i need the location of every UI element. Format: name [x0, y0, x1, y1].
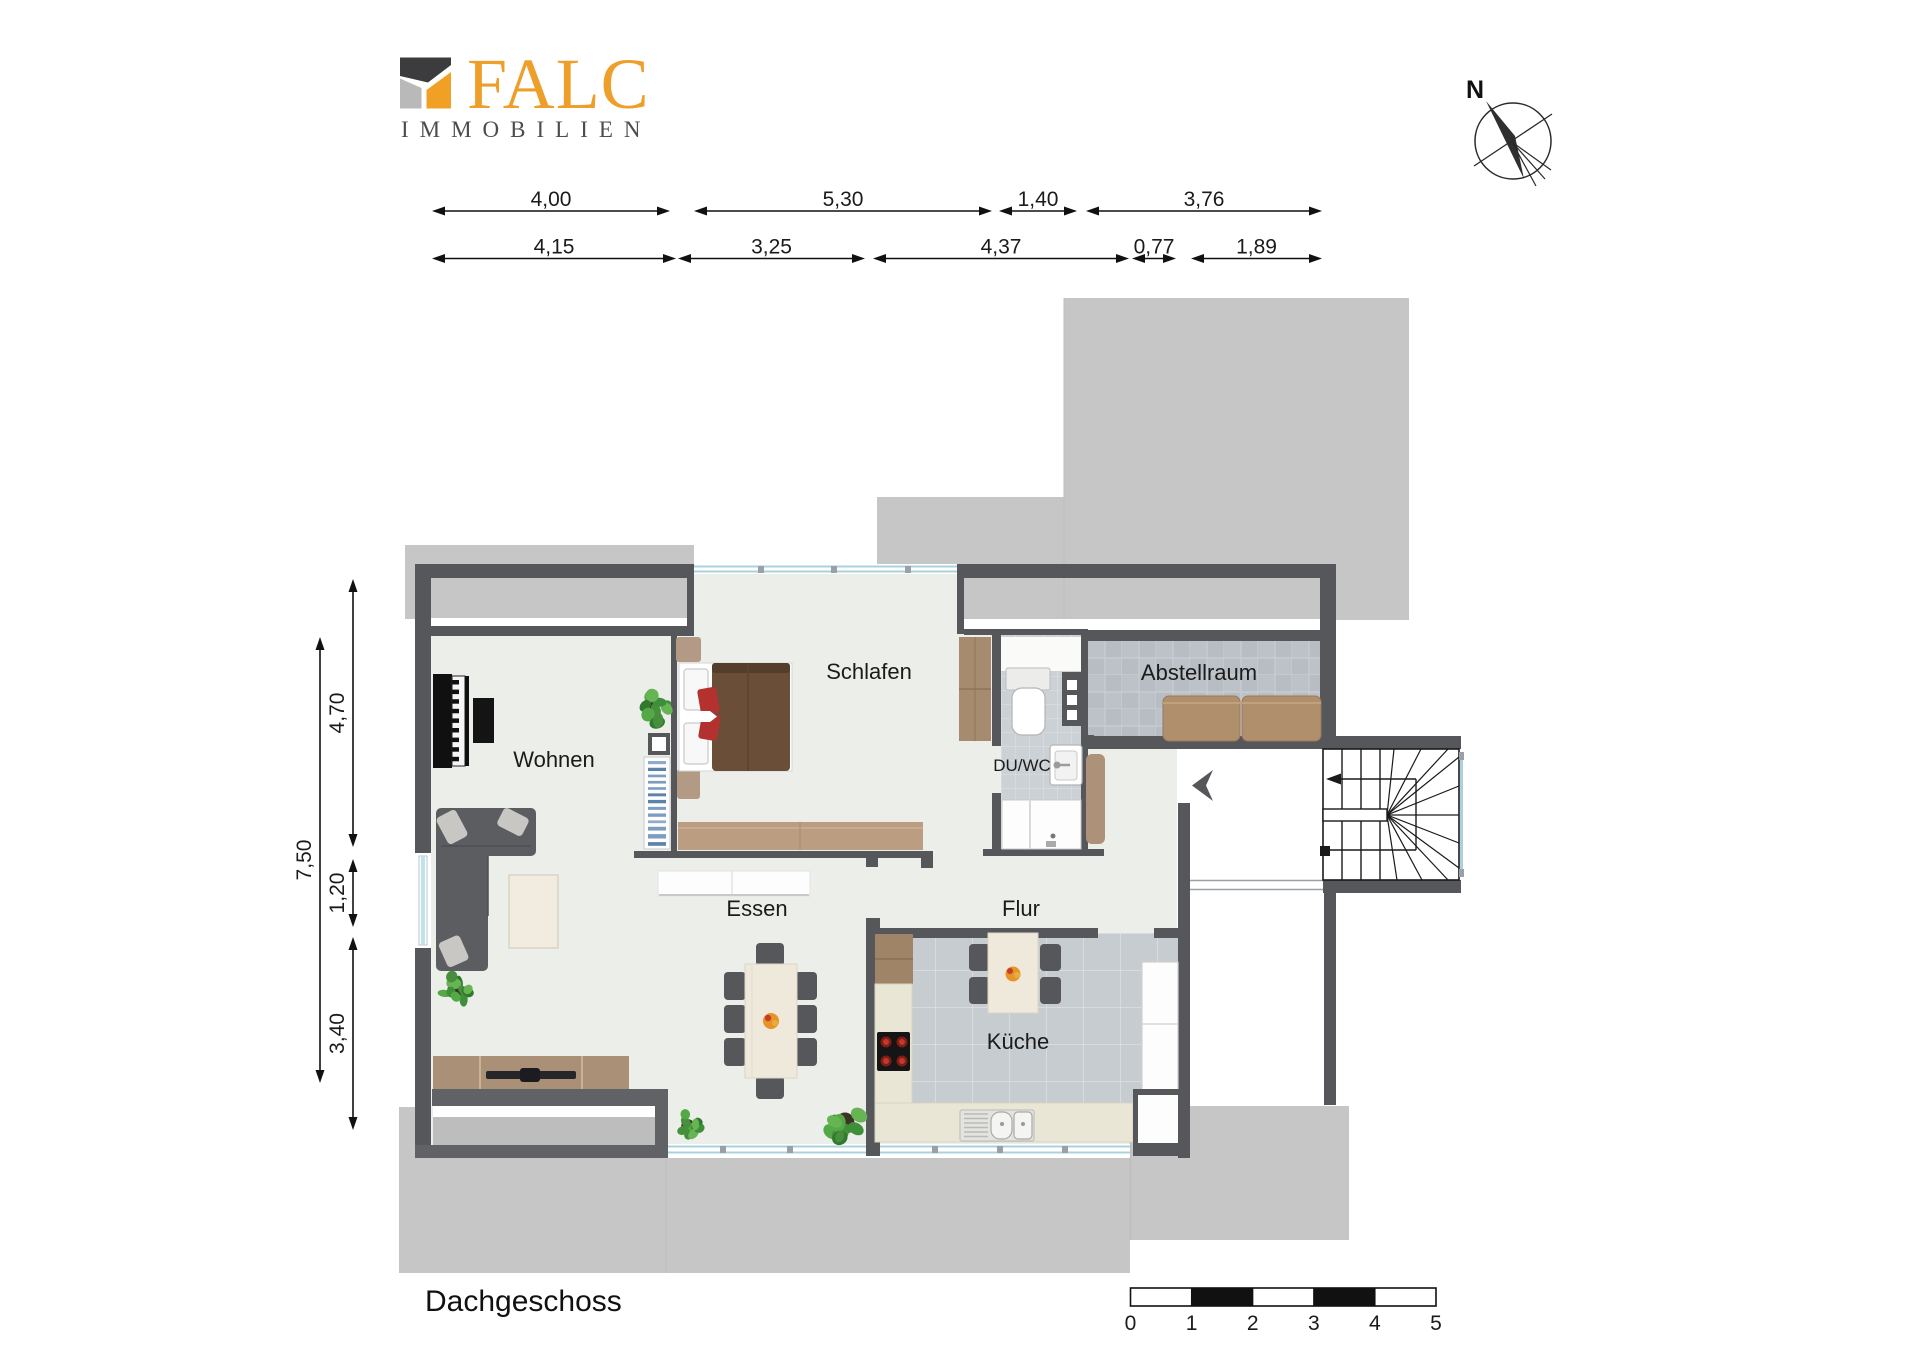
svg-text:Dachgeschoss: Dachgeschoss: [425, 1285, 622, 1318]
svg-text:Küche: Küche: [987, 1029, 1049, 1054]
svg-text:Abstellraum: Abstellraum: [1141, 660, 1257, 685]
svg-text:4,37: 4,37: [981, 236, 1022, 259]
svg-text:Schlafen: Schlafen: [826, 659, 912, 684]
svg-text:3: 3: [1308, 1312, 1320, 1335]
svg-text:Essen: Essen: [726, 896, 787, 921]
svg-text:FALC: FALC: [467, 44, 650, 124]
svg-text:3,40: 3,40: [326, 1013, 349, 1054]
svg-text:4,15: 4,15: [534, 236, 575, 259]
svg-text:5,30: 5,30: [823, 188, 864, 211]
svg-text:Wohnen: Wohnen: [513, 747, 595, 772]
svg-text:1: 1: [1186, 1312, 1198, 1335]
svg-text:4: 4: [1369, 1312, 1381, 1335]
svg-text:Flur: Flur: [1002, 896, 1040, 921]
svg-text:1,40: 1,40: [1018, 188, 1059, 211]
svg-text:0: 0: [1125, 1312, 1137, 1335]
svg-text:DU/WC: DU/WC: [993, 756, 1051, 775]
svg-text:1,20: 1,20: [326, 873, 349, 914]
svg-text:5: 5: [1430, 1312, 1442, 1335]
svg-text:0,77: 0,77: [1134, 236, 1175, 259]
svg-text:IMMOBILIEN: IMMOBILIEN: [401, 117, 652, 142]
svg-text:4,70: 4,70: [326, 693, 349, 734]
svg-text:7,50: 7,50: [293, 840, 316, 881]
svg-text:3,25: 3,25: [751, 236, 792, 259]
svg-text:4,00: 4,00: [531, 188, 572, 211]
svg-text:1,89: 1,89: [1236, 236, 1277, 259]
svg-text:2: 2: [1247, 1312, 1259, 1335]
svg-text:3,76: 3,76: [1184, 188, 1225, 211]
svg-text:N: N: [1466, 76, 1484, 104]
